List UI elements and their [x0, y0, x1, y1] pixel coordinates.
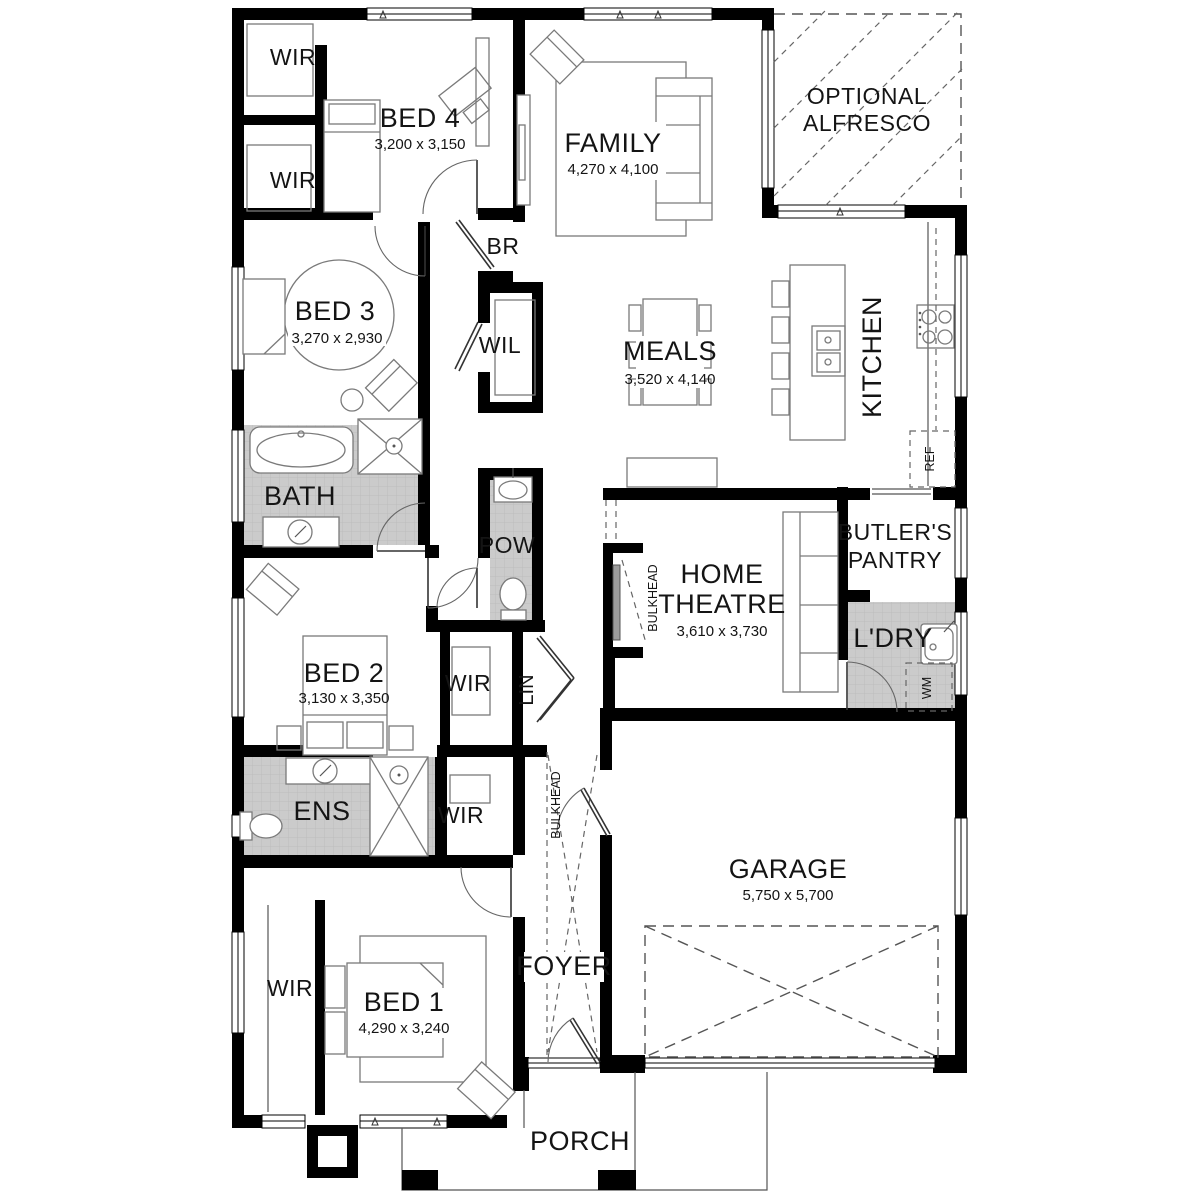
bath-label: BATH — [264, 481, 336, 511]
wir1-label: WIR — [270, 44, 316, 70]
alfresco-label-line1: OPTIONAL — [807, 83, 927, 109]
bed4-label: BED 4 — [380, 103, 461, 133]
floor-plan-svg: WIR BED 4 3,200 x 3,150 FAMILY 4,270 x 4… — [0, 0, 1200, 1200]
butlers-label-line1: BUTLER'S — [838, 519, 952, 545]
ref-label: REF — [923, 446, 937, 471]
porch-corner-pillar-core — [318, 1136, 347, 1167]
floor-plan-canvas: WIR BED 4 3,200 x 3,150 FAMILY 4,270 x 4… — [0, 0, 1200, 1200]
pow-label: POW — [479, 532, 535, 558]
garage-label: GARAGE — [729, 854, 848, 884]
meals-dims: 3,520 x 4,140 — [625, 371, 716, 388]
home-theatre-dims: 3,610 x 3,730 — [677, 623, 768, 640]
wir3-label: WIR — [445, 670, 491, 696]
bed1-dims: 4,290 x 3,240 — [359, 1020, 450, 1037]
meals-furniture — [627, 299, 717, 487]
wir5-label: WIR — [267, 975, 313, 1001]
lin-label: LIN — [516, 674, 538, 705]
theatre-screen — [613, 565, 620, 640]
bulkhead-foyer-label: BULKHEAD — [549, 771, 563, 838]
family-label: FAMILY — [564, 128, 661, 158]
home-theatre-label-line1: HOME — [681, 559, 764, 589]
bed2-label: BED 2 — [304, 658, 385, 688]
wir4-shelf — [450, 775, 490, 803]
wir4-label: WIR — [438, 802, 484, 828]
alfresco-label-line2: ALFRESCO — [803, 110, 931, 136]
porch-pillar-mid — [598, 1170, 636, 1190]
linen-bifold-door — [537, 636, 574, 722]
br-label: BR — [487, 233, 520, 259]
bed1-label: BED 1 — [364, 987, 445, 1017]
wir2-label: WIR — [270, 167, 316, 193]
wm-label: WM — [920, 677, 934, 699]
butlers-bench — [872, 489, 931, 494]
ldry-label: L'DRY — [853, 623, 932, 653]
butlers-label-line2: PANTRY — [848, 547, 942, 573]
home-theatre-label-line2: THEATRE — [658, 589, 786, 619]
ens-label: ENS — [293, 796, 350, 826]
bed4-dims: 3,200 x 3,150 — [375, 136, 466, 153]
garage-car-space — [645, 926, 938, 1057]
porch-pillar-left — [402, 1170, 438, 1190]
bed3-dims: 3,270 x 2,930 — [292, 330, 383, 347]
bulkhead-theatre-label: BULKHEAD — [646, 564, 660, 631]
bed3-label: BED 3 — [295, 296, 376, 326]
meals-label: MEALS — [623, 336, 717, 366]
bed2-dims: 3,130 x 3,350 — [299, 690, 390, 707]
porch-label: PORCH — [530, 1126, 630, 1156]
kitchen-label: KITCHEN — [857, 296, 887, 418]
garage-dims: 5,750 x 5,700 — [743, 887, 834, 904]
foyer-label: FOYER — [516, 951, 612, 981]
wil-label: WIL — [479, 332, 521, 358]
family-dims: 4,270 x 4,100 — [568, 161, 659, 178]
